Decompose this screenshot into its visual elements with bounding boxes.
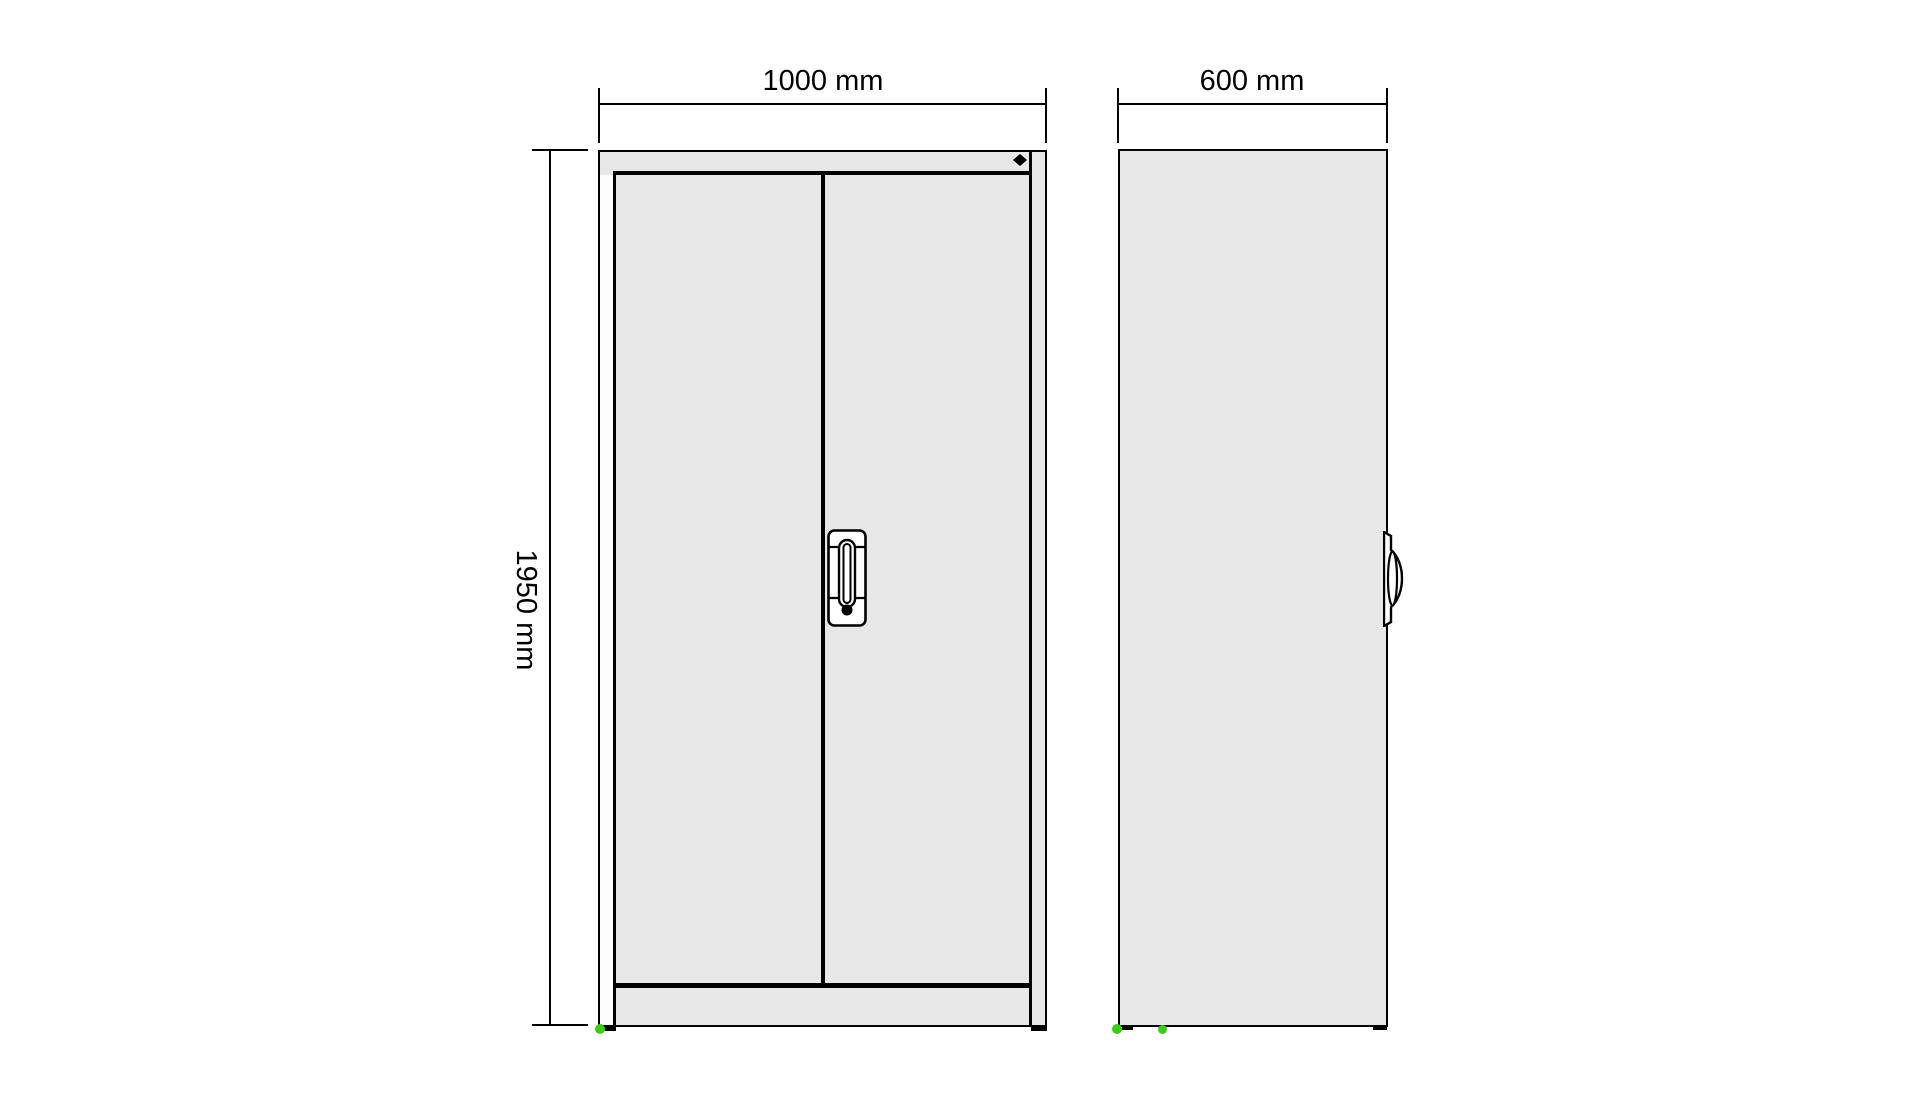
front-left-hinge-gap bbox=[600, 175, 613, 1025]
dimension-side-depth-tick-right bbox=[1386, 88, 1388, 143]
front-foot-right bbox=[1031, 1027, 1047, 1031]
front-door-divider-line bbox=[821, 175, 825, 985]
dimension-side-depth-line bbox=[1118, 103, 1387, 105]
handle-grip-inner bbox=[844, 544, 851, 603]
front-right-wall-line bbox=[1029, 152, 1032, 1025]
dimension-front-height-tick-bottom bbox=[532, 1024, 588, 1026]
diamond-badge-icon bbox=[1013, 154, 1027, 166]
foot-marker-front-left bbox=[595, 1024, 605, 1034]
keyhole-icon bbox=[842, 605, 853, 616]
dimension-side-depth-tick-left bbox=[1117, 88, 1119, 143]
dimension-label-front-height: 1950 mm bbox=[509, 520, 543, 700]
dimension-front-width-line bbox=[599, 103, 1046, 105]
side-handle-profile bbox=[1383, 531, 1405, 627]
front-handle-lock bbox=[827, 529, 867, 628]
dimension-front-height-line bbox=[549, 150, 551, 1026]
foot-marker-side-center bbox=[1158, 1025, 1167, 1034]
dimension-front-width-tick-left bbox=[598, 88, 600, 143]
front-left-door-edge-line bbox=[613, 171, 616, 1025]
foot-marker-side-left bbox=[1112, 1024, 1122, 1034]
side-foot-left-mark bbox=[1122, 1027, 1133, 1030]
dimension-front-width-tick-right bbox=[1045, 88, 1047, 143]
front-view-cabinet bbox=[598, 150, 1047, 1027]
dimension-label-side-depth: 600 mm bbox=[1152, 64, 1352, 98]
front-door-bottom-line bbox=[616, 983, 1029, 988]
dimension-label-front-width: 1000 mm bbox=[723, 64, 923, 98]
side-handle-slot bbox=[1388, 552, 1397, 606]
side-foot-right bbox=[1373, 1026, 1387, 1030]
dimension-front-height-tick-top bbox=[532, 149, 588, 151]
side-view-cabinet bbox=[1118, 149, 1388, 1027]
technical-drawing-canvas: 1000 mm 600 mm 1950 mm bbox=[0, 0, 1920, 1104]
